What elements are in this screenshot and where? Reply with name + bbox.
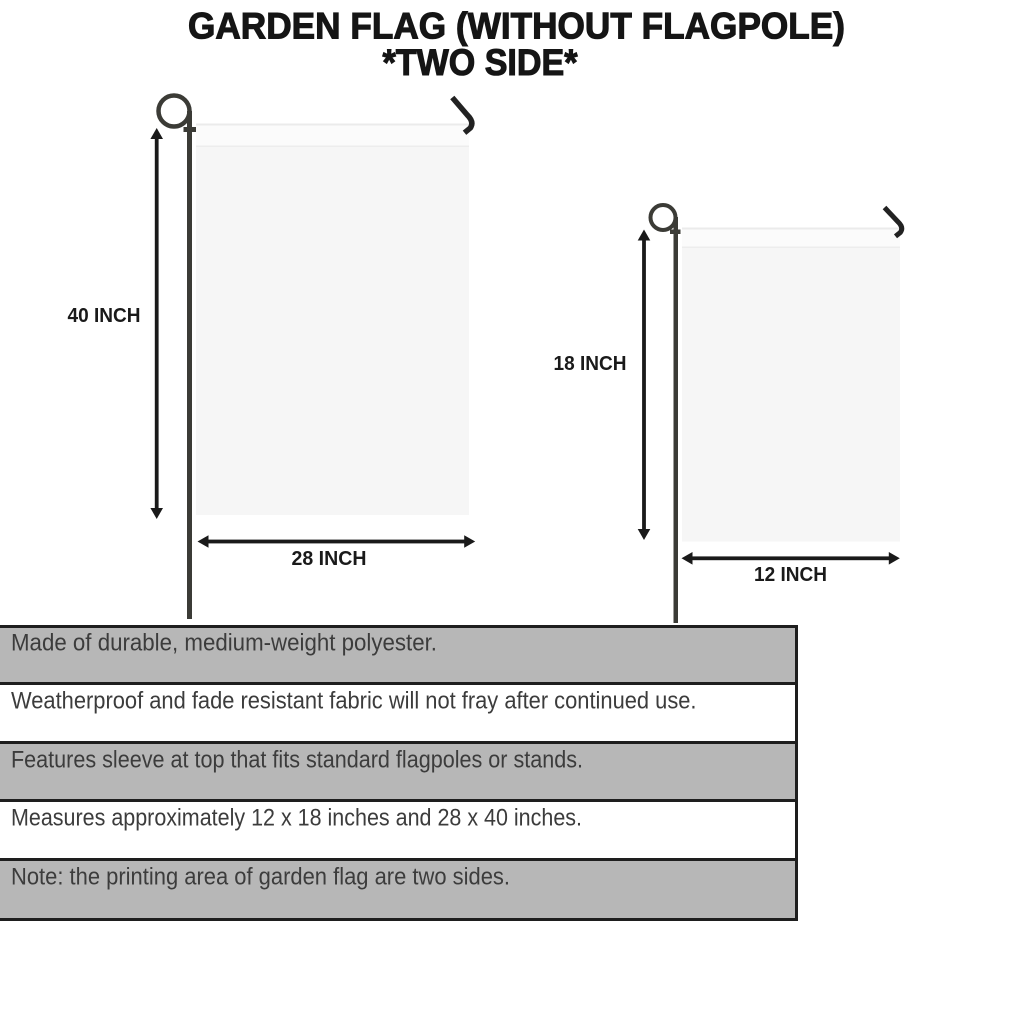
svg-text:Note: the printing area of gar: Note: the printing area of garden flag a… <box>11 864 510 891</box>
svg-text:Features sleeve at top that fi: Features sleeve at top that fits standar… <box>11 746 583 773</box>
svg-text:12 INCH: 12 INCH <box>754 564 827 586</box>
svg-text:*TWO SIDE*: *TWO SIDE* <box>383 41 578 83</box>
svg-text:18 INCH: 18 INCH <box>554 353 627 375</box>
svg-text:28 INCH: 28 INCH <box>292 548 367 570</box>
svg-text:Made of durable, medium-weight: Made of durable, medium-weight polyester… <box>11 630 437 657</box>
svg-text:Weatherproof and fade resistan: Weatherproof and fade resistant fabric w… <box>11 688 697 715</box>
svg-text:40 INCH: 40 INCH <box>68 305 141 327</box>
svg-text:Measures approximately 12 x 18: Measures approximately 12 x 18 inches an… <box>11 804 582 831</box>
